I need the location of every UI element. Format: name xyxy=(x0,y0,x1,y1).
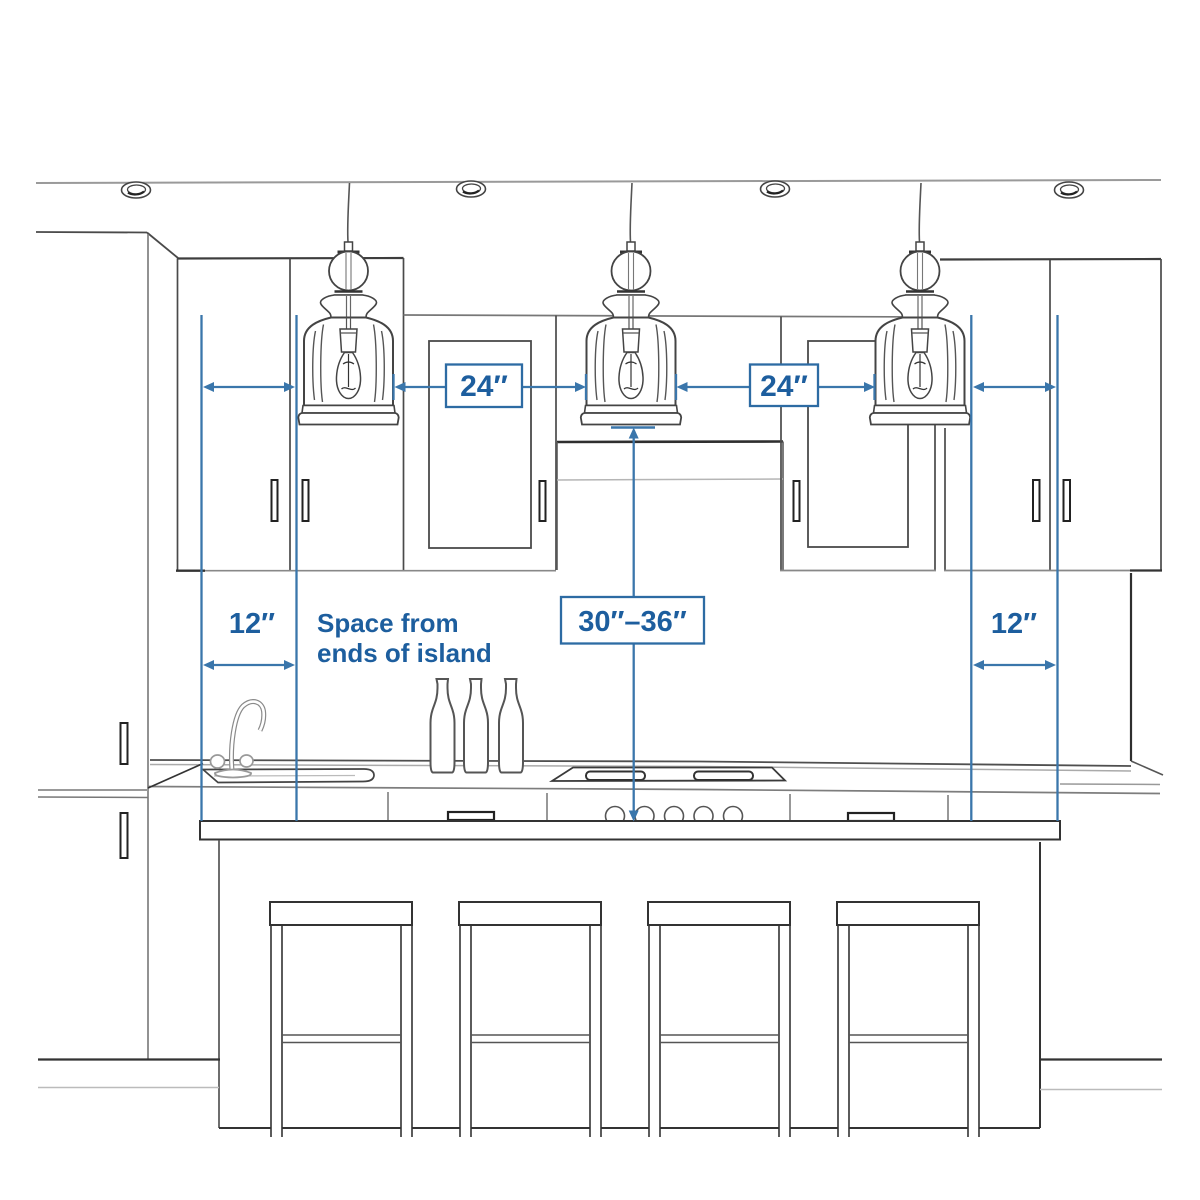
svg-text:Space from: Space from xyxy=(317,608,459,638)
svg-text:24″: 24″ xyxy=(460,370,508,403)
svg-text:12″: 12″ xyxy=(229,608,275,640)
svg-text:30″–36″: 30″–36″ xyxy=(578,606,687,638)
svg-text:ends of island: ends of island xyxy=(317,638,492,668)
svg-text:24″: 24″ xyxy=(760,370,808,403)
svg-text:12″: 12″ xyxy=(991,608,1037,640)
